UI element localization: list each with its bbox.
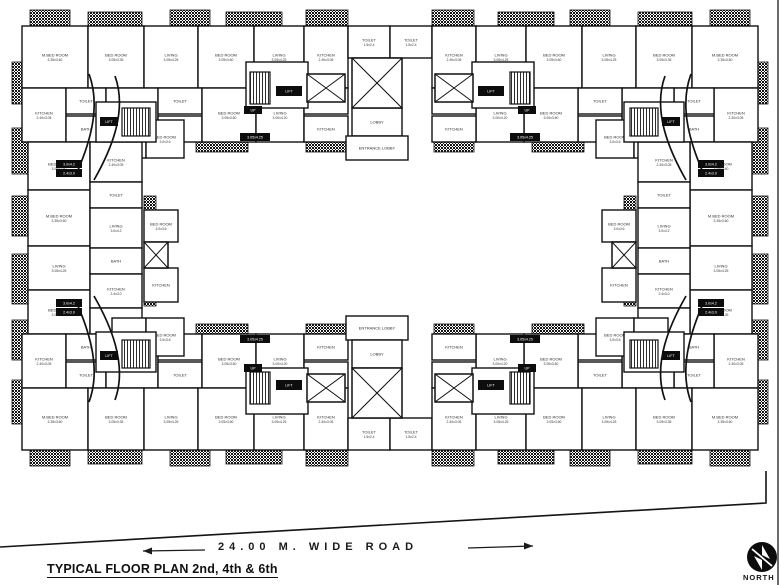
room-label: KITCHEN (317, 127, 335, 132)
room-dims: 3.35x3.60 (52, 219, 67, 223)
room-dims: 2.40x3.05 (447, 420, 462, 424)
room-label: BATH (659, 259, 669, 264)
room-label: KITCHEN (317, 53, 335, 58)
duct-xbox (307, 74, 345, 102)
room-label: BED ROOM (604, 135, 626, 140)
room-dims: 2.40x3.05 (447, 58, 462, 62)
room-dims: 3.35x3.60 (718, 420, 733, 424)
dim-tag-text: LIFT (487, 89, 495, 93)
room-label: BED ROOM (218, 111, 240, 116)
room-label: BED ROOM (154, 135, 176, 140)
dim-tag-text: 3.05x4.25 (247, 135, 263, 139)
balcony-hatch-block (306, 450, 348, 466)
room-label: KITCHEN (317, 415, 335, 420)
room-label: KITCHEN (655, 158, 673, 163)
room-label: BED ROOM (604, 333, 626, 338)
room-dims: 3.05x3.35 (657, 420, 672, 424)
room-label: M.BED ROOM (42, 53, 68, 58)
room-dims: 3.05x3.60 (222, 362, 237, 366)
balcony-hatch-block (30, 10, 70, 26)
dim-tag-text: 3.05x4.25 (247, 337, 263, 341)
room-dims: 3.00x4.20 (273, 116, 288, 120)
room-label: KITCHEN (317, 345, 335, 350)
room-label: BED ROOM (653, 53, 675, 58)
room-dims: 2.40x3.05 (729, 116, 744, 120)
room-label: LIVING (272, 415, 285, 420)
dim-tag-text: 3.05x4.25 (517, 337, 533, 341)
staircase (630, 108, 658, 136)
room-label: BED ROOM (215, 53, 237, 58)
room-label: BATH (81, 127, 91, 132)
room-label: TOILET (687, 99, 701, 104)
balcony-hatch-block (710, 450, 750, 466)
room-dims: 2.40x3.05 (657, 163, 672, 167)
room-label: TOILET (109, 193, 123, 198)
room-label: BED ROOM (653, 415, 675, 420)
room-dims: 2.40x3.05 (319, 420, 334, 424)
room-dims: 3.05x3.60 (547, 58, 562, 62)
room-dims: 3.35x3.60 (48, 420, 63, 424)
room-dims: 1.5x2.4 (405, 435, 416, 439)
room-label: LIVING (494, 415, 507, 420)
room-label: BED ROOM (215, 415, 237, 420)
room-label: KITCHEN (445, 345, 463, 350)
room-label: LIVING (494, 53, 507, 58)
room-label: KITCHEN (107, 158, 125, 163)
room-dims: 2.4x3.0 (110, 292, 121, 296)
room-label: M.BED ROOM (46, 214, 72, 219)
room-dims: 3.0x4.2 (110, 229, 121, 233)
room-dims: 3.05x3.60 (544, 116, 559, 120)
duct-xbox (144, 242, 168, 268)
room-label: BED ROOM (105, 53, 127, 58)
room-dims: 2.40x3.05 (37, 362, 52, 366)
room-label: LOBBY (370, 120, 384, 125)
staircase (122, 108, 150, 136)
room-label: LIVING (273, 111, 286, 116)
room-dims: 3.05x3.60 (219, 58, 234, 62)
dim-tag-text: UP (251, 108, 257, 112)
room-dims: 3.05x4.25 (52, 269, 67, 273)
room-label: LIVING (714, 264, 727, 269)
room-dims: 3.35x3.60 (714, 219, 729, 223)
staircase (510, 72, 530, 104)
room-dims: 2.40x3.05 (37, 116, 52, 120)
balcony-hatch-block (752, 254, 768, 304)
room-label: M.BED ROOM (712, 53, 738, 58)
room-label: M.BED ROOM (708, 214, 734, 219)
room-label: TOILET (404, 430, 418, 435)
room-label: BED ROOM (543, 415, 565, 420)
room-label: TOILET (657, 193, 671, 198)
room-label: KITCHEN (445, 127, 463, 132)
dim-tag-text: UP (251, 366, 257, 370)
room-label: LIVING (164, 53, 177, 58)
room-label: BED ROOM (218, 357, 240, 362)
dim-tag-text: LIFT (667, 354, 675, 358)
room-label: TOILET (362, 38, 376, 43)
dim-tag-text: UP (525, 366, 531, 370)
dim-tag-text: 3.0x4.2 (705, 301, 717, 305)
road-label: 24.00 M. WIDE ROAD (218, 541, 418, 553)
dim-tag-text: LIFT (285, 89, 293, 93)
room-label: TOILET (173, 373, 187, 378)
room-dims: 3.05x3.35 (109, 58, 124, 62)
room-label: TOILET (687, 373, 701, 378)
balcony-hatch-block (570, 450, 610, 466)
dim-tag-text: LIFT (667, 120, 675, 124)
room-dims: 3.0x3.6 (159, 338, 170, 342)
road-arrow-left-head (143, 548, 152, 555)
balcony-hatch-block (12, 196, 28, 236)
dim-tag-text: 3.05x4.25 (517, 135, 533, 139)
road-arrow-right-head (524, 543, 533, 550)
floor-plan-page: M.BED ROOM3.35x3.60BED ROOM3.05x3.35LIVI… (0, 0, 780, 585)
room-label: LIVING (493, 111, 506, 116)
staircase (122, 340, 150, 368)
room-dims: 1.5x2.4 (405, 43, 416, 47)
room-label: M.BED ROOM (42, 415, 68, 420)
floor-plan-canvas: M.BED ROOM3.35x3.60BED ROOM3.05x3.35LIVI… (0, 0, 780, 585)
road-arrow-right (468, 546, 533, 548)
room-dims: 3.0x3.6 (155, 227, 166, 231)
room-dims: 1.5x2.4 (363, 43, 374, 47)
room-label: LIVING (493, 357, 506, 362)
balcony-hatch-block (432, 450, 474, 466)
balcony-hatch-block (710, 10, 750, 26)
dim-tag-text: LIFT (105, 354, 113, 358)
room-dims: 3.05x4.25 (602, 420, 617, 424)
room-dims: 3.05x3.35 (109, 420, 124, 424)
room-label: TOILET (79, 99, 93, 104)
dim-tag-text: 2.4x3.0 (705, 171, 717, 175)
room-label: KITCHEN (152, 283, 170, 288)
balcony-hatch-block (170, 10, 210, 26)
room-dims: 3.0x3.6 (609, 140, 620, 144)
room-label: BATH (81, 345, 91, 350)
balcony-hatch-block (752, 196, 768, 236)
room-dims: 3.35x3.60 (48, 58, 63, 62)
dim-tag-text: 2.4x3.0 (63, 171, 75, 175)
balcony-hatch-block (12, 254, 28, 304)
room-label: LIVING (602, 415, 615, 420)
plan-title: TYPICAL FLOOR PLAN 2nd, 4th & 6th (47, 562, 278, 578)
duct-xbox (435, 374, 473, 402)
road-arrow-left (143, 550, 205, 551)
room-label: TOILET (173, 99, 187, 104)
room-dims: 3.0x3.6 (613, 227, 624, 231)
balcony-hatch-block (30, 450, 70, 466)
duct-xbox (435, 74, 473, 102)
room-label: TOILET (593, 373, 607, 378)
room-label: ENTRANCE LOBBY (359, 146, 396, 151)
room-dims: 3.05x3.60 (544, 362, 559, 366)
room-dims: 2.4x3.0 (658, 292, 669, 296)
plot-boundary-line (0, 471, 766, 547)
room-dims: 3.05x4.25 (164, 420, 179, 424)
dim-tag-text: 2.4x3.0 (705, 310, 717, 314)
room-label: BATH (111, 259, 121, 264)
room-label: LIVING (273, 357, 286, 362)
room-label: BED ROOM (150, 222, 172, 227)
room-dims: 3.05x4.25 (272, 420, 287, 424)
dim-tag-text: 3.0x4.2 (63, 162, 75, 166)
room-label: TOILET (404, 38, 418, 43)
room-label: LIVING (657, 224, 670, 229)
room-label: KITCHEN (655, 287, 673, 292)
room-dims: 3.0x4.2 (658, 229, 669, 233)
room-dims: 3.05x3.60 (219, 420, 234, 424)
room-dims: 3.0x3.6 (609, 338, 620, 342)
room-label: BED ROOM (154, 333, 176, 338)
room-label: BED ROOM (105, 415, 127, 420)
dim-tag-text: UP (525, 108, 531, 112)
dim-tag-text: LIFT (487, 383, 495, 387)
room-label: KITCHEN (445, 53, 463, 58)
room-label: KITCHEN (610, 283, 628, 288)
room-dims: 3.05x4.25 (494, 420, 509, 424)
room-label: KITCHEN (35, 357, 53, 362)
dim-tag-text: 3.0x4.2 (705, 162, 717, 166)
balcony-hatch-block (170, 450, 210, 466)
staircase (250, 372, 270, 404)
room-dims: 3.00x4.20 (493, 362, 508, 366)
room-label: LIVING (272, 53, 285, 58)
room-label: LIVING (602, 53, 615, 58)
room-label: TOILET (593, 99, 607, 104)
duct-xbox (307, 374, 345, 402)
room-dims: 1.5x2.4 (363, 435, 374, 439)
room-dims: 3.00x4.20 (273, 362, 288, 366)
room-label: LIVING (109, 224, 122, 229)
dim-tag-text: LIFT (285, 383, 293, 387)
staircase (510, 372, 530, 404)
balcony-hatch-block (432, 10, 474, 26)
balcony-hatch-block (306, 10, 348, 26)
room-dims: 3.05x4.25 (164, 58, 179, 62)
dim-tag-text: 2.4x3.0 (63, 310, 75, 314)
duct-xbox (612, 242, 636, 268)
room-label: TOILET (362, 430, 376, 435)
room-dims: 3.05x3.60 (222, 116, 237, 120)
dim-tag-text: 3.0x4.2 (63, 301, 75, 305)
room-label: KITCHEN (445, 415, 463, 420)
room-label: TOILET (79, 373, 93, 378)
room-dims: 3.05x4.25 (714, 269, 729, 273)
duct-xbox (352, 58, 402, 108)
north-compass-icon (747, 542, 777, 572)
staircase (630, 340, 658, 368)
room-label: LIVING (52, 264, 65, 269)
room-label: KITCHEN (35, 111, 53, 116)
room-label: LIVING (164, 415, 177, 420)
room-label: M.BED ROOM (712, 415, 738, 420)
room-dims: 3.05x3.35 (657, 58, 672, 62)
room-dims: 3.05x4.25 (602, 58, 617, 62)
room-dims: 3.05x3.60 (547, 420, 562, 424)
room-label: KITCHEN (727, 357, 745, 362)
room-label: ENTRANCE LOBBY (359, 326, 396, 331)
room-label: BED ROOM (608, 222, 630, 227)
room-label: BED ROOM (540, 111, 562, 116)
dim-tag-text: LIFT (105, 120, 113, 124)
room-dims: 2.40x3.05 (319, 58, 334, 62)
room-label: BED ROOM (540, 357, 562, 362)
north-label: NORTH (743, 573, 775, 582)
balcony-hatch-block (570, 10, 610, 26)
room-dims: 2.40x3.05 (109, 163, 124, 167)
duct-xbox (352, 368, 402, 418)
room-label: BATH (689, 345, 699, 350)
room-label: KITCHEN (727, 111, 745, 116)
room-dims: 3.0x3.6 (159, 140, 170, 144)
room-dims: 3.00x4.20 (493, 116, 508, 120)
room-label: KITCHEN (107, 287, 125, 292)
room-dims: 2.40x3.05 (729, 362, 744, 366)
staircase (250, 72, 270, 104)
room-label: BED ROOM (543, 53, 565, 58)
room-label: LOBBY (370, 352, 384, 357)
room-dims: 3.35x3.60 (718, 58, 733, 62)
room-label: BATH (689, 127, 699, 132)
